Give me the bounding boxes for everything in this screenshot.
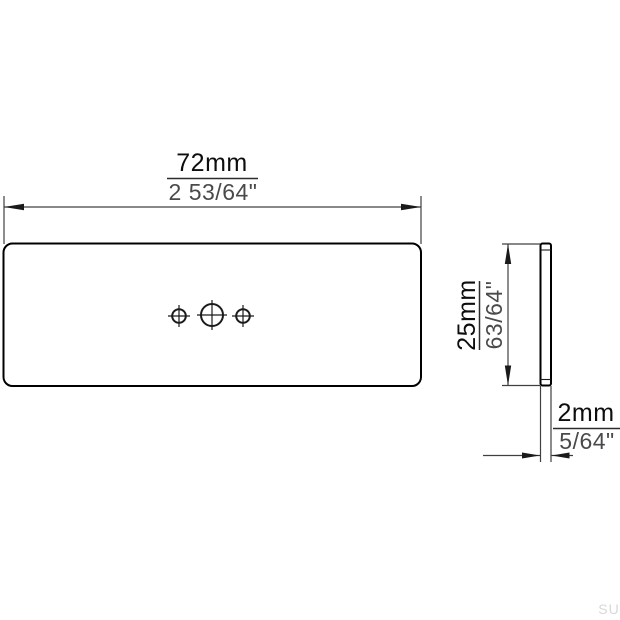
thickness-imperial-label: 5/64" [559, 428, 614, 454]
height-dimension: 25mm 63/64" [453, 244, 540, 386]
arrowhead-inward-left-icon [522, 453, 540, 459]
width-metric-label: 72mm [176, 149, 247, 177]
technical-drawing: 72mm 2 53/64" 25mm 63/64" 2mm 5/64" SU [0, 0, 620, 620]
thickness-metric-label: 2mm [557, 399, 614, 427]
thickness-dimension: 2mm 5/64" [483, 386, 620, 462]
arrowhead-down-icon [505, 366, 511, 386]
height-metric-label: 25mm [453, 279, 481, 350]
plate-side-profile [541, 244, 552, 386]
drawing-canvas: 72mm 2 53/64" 25mm 63/64" 2mm 5/64" SU [0, 0, 620, 620]
height-imperial-label: 63/64" [481, 281, 507, 350]
arrowhead-right-icon [401, 204, 421, 210]
watermark: SU [598, 601, 619, 617]
width-dimension: 72mm 2 53/64" [4, 149, 421, 244]
side-profile-outline [541, 244, 552, 386]
arrowhead-up-icon [505, 244, 511, 264]
arrowhead-left-icon [4, 204, 24, 210]
width-imperial-label: 2 53/64" [169, 179, 258, 205]
